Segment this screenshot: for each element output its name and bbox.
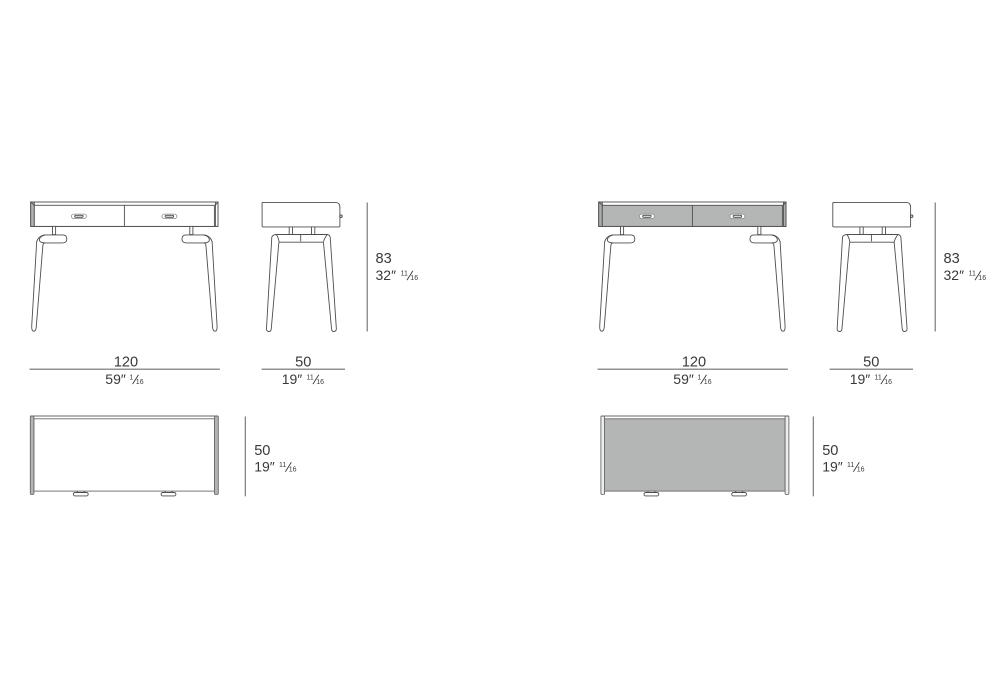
svg-text:120: 120 (682, 355, 706, 371)
svg-text:83: 83 (944, 251, 960, 267)
svg-text:83: 83 (376, 251, 392, 267)
svg-text:16: 16 (136, 379, 144, 386)
svg-text:19″: 19″ (282, 371, 303, 387)
svg-text:59″: 59″ (105, 371, 126, 387)
svg-text:50: 50 (254, 443, 270, 459)
svg-text:32″: 32″ (944, 267, 965, 283)
svg-text:16: 16 (978, 275, 986, 282)
svg-text:120: 120 (114, 355, 138, 371)
svg-text:11: 11 (969, 270, 976, 277)
svg-text:16: 16 (289, 467, 297, 474)
svg-text:16: 16 (884, 379, 892, 386)
svg-text:16: 16 (857, 467, 865, 474)
svg-text:16: 16 (316, 379, 324, 386)
svg-text:19″: 19″ (254, 459, 275, 475)
svg-text:11: 11 (847, 462, 854, 469)
svg-text:19″: 19″ (850, 371, 871, 387)
svg-text:11: 11 (401, 270, 408, 277)
svg-text:11: 11 (307, 374, 314, 381)
svg-text:19″: 19″ (822, 459, 843, 475)
svg-text:1: 1 (697, 374, 701, 381)
svg-text:59″: 59″ (673, 371, 694, 387)
svg-text:16: 16 (704, 379, 712, 386)
svg-text:32″: 32″ (376, 267, 397, 283)
svg-text:50: 50 (863, 355, 879, 371)
svg-text:50: 50 (822, 443, 838, 459)
svg-text:1: 1 (129, 374, 133, 381)
svg-text:11: 11 (875, 374, 882, 381)
svg-text:11: 11 (279, 462, 286, 469)
svg-text:50: 50 (295, 355, 311, 371)
svg-text:16: 16 (410, 275, 418, 282)
